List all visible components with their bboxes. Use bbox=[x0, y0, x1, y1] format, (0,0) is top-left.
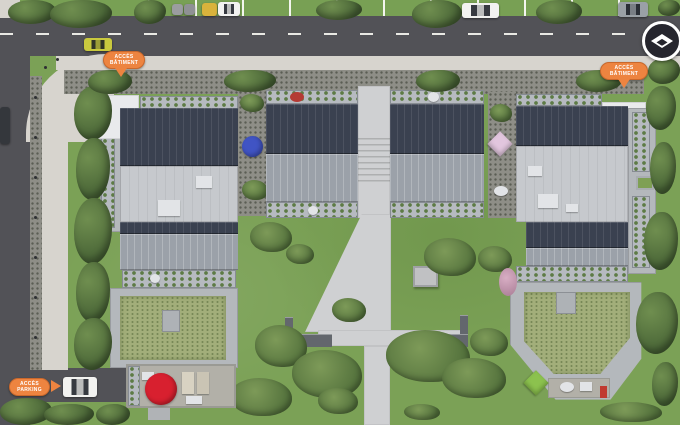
tree-right-edge bbox=[650, 142, 676, 194]
flower-bed-red bbox=[290, 92, 304, 102]
car-dark-parked-left bbox=[0, 107, 10, 144]
red-parasol-marker bbox=[145, 373, 177, 405]
bldg-b-west-slate-roof bbox=[390, 154, 484, 202]
terrace-step bbox=[148, 408, 170, 420]
patio-furniture bbox=[560, 382, 574, 392]
bldg-b-east-dark-roof bbox=[516, 106, 628, 146]
shrub bbox=[318, 388, 358, 414]
skylight bbox=[158, 200, 180, 216]
tree-right-edge bbox=[636, 292, 678, 354]
waste-bin bbox=[184, 4, 195, 15]
walkway-steps bbox=[358, 138, 390, 182]
patio-table bbox=[428, 92, 439, 102]
tree-right-edge bbox=[648, 58, 680, 84]
blue-parasol bbox=[242, 136, 263, 157]
access-batiment-marker-nw[interactable]: ACCÈS BÂTIMENT bbox=[103, 51, 145, 69]
bldg-a-east-north-planter bbox=[266, 90, 358, 104]
flower-bed-pink bbox=[499, 268, 517, 296]
patio-furniture bbox=[494, 186, 508, 196]
patio-furniture bbox=[580, 382, 592, 391]
patio-table bbox=[308, 206, 318, 215]
hedge-left bbox=[74, 198, 112, 264]
shrub bbox=[600, 402, 662, 422]
hedge-left bbox=[76, 262, 110, 322]
tree-right-edge bbox=[646, 86, 676, 130]
shrub bbox=[230, 378, 292, 416]
marker-label-line2: BÂTIMENT bbox=[610, 71, 638, 77]
bldg-a-east-slate-roof bbox=[266, 154, 358, 202]
shrub bbox=[442, 358, 506, 398]
left-sidewalk bbox=[40, 110, 68, 370]
shrub bbox=[286, 244, 314, 264]
siteplan-aerial-view: ACCÈS BÂTIMENT ACCÈS BÂTIMENT ACCÈS PARK… bbox=[0, 0, 680, 425]
shrub bbox=[332, 298, 366, 322]
shrub bbox=[250, 222, 292, 252]
tree-right-edge bbox=[652, 362, 678, 406]
access-batiment-marker-ne[interactable]: ACCÈS BÂTIMENT bbox=[600, 62, 648, 80]
shrub bbox=[242, 180, 268, 200]
bollard bbox=[56, 58, 59, 61]
tree-bottom-left bbox=[96, 404, 130, 425]
bldg-b-west-south-planter bbox=[390, 202, 484, 218]
hedge-left bbox=[74, 318, 112, 370]
marker-label-line2: PARKING bbox=[17, 387, 42, 393]
access-parking-marker-sw[interactable]: ACCÈS PARKING bbox=[9, 378, 50, 396]
bldg-b-west-dark-roof bbox=[390, 104, 484, 154]
skylight bbox=[196, 176, 212, 188]
terrace-planter bbox=[128, 366, 140, 406]
sun-lounger bbox=[182, 372, 194, 394]
bollard bbox=[34, 256, 37, 259]
bldg-a-west-terrace-planter bbox=[122, 270, 236, 288]
bldg-b-east-terrace-planter bbox=[516, 266, 628, 282]
bldg-b-east-dark-roof-2 bbox=[526, 222, 628, 248]
roof-stair-notch bbox=[162, 310, 180, 332]
tree-bottom-left bbox=[44, 404, 94, 425]
patio-furniture bbox=[186, 396, 202, 404]
bldg-a-west-dark-roof bbox=[120, 108, 238, 166]
bollard bbox=[44, 66, 47, 69]
bldg-a-west-dark-roof-2 bbox=[120, 222, 238, 234]
car-white-parked bbox=[462, 3, 499, 18]
car-white-bottom bbox=[63, 377, 97, 397]
shrub bbox=[490, 104, 512, 122]
sun-lounger bbox=[197, 372, 209, 394]
bldg-b-east-balcony-planters bbox=[632, 112, 650, 172]
top-sidewalk bbox=[56, 56, 680, 70]
bldg-b-east-north-planter bbox=[516, 94, 602, 106]
bollard bbox=[34, 176, 37, 179]
shrub bbox=[404, 404, 440, 420]
red-bench bbox=[600, 386, 607, 398]
skylight bbox=[528, 166, 542, 176]
marker-arrow-down-icon bbox=[618, 79, 630, 88]
car-yellow-driving bbox=[84, 38, 112, 51]
skylight bbox=[566, 204, 578, 212]
bollard bbox=[34, 136, 37, 139]
patio-table bbox=[150, 274, 160, 283]
skylight bbox=[538, 194, 558, 208]
marker-arrow-down-icon bbox=[115, 68, 127, 77]
bldg-a-garden-terrace bbox=[126, 364, 236, 408]
car-yellow-parked bbox=[202, 3, 217, 16]
roof-stair-notch bbox=[556, 292, 576, 314]
marker-arrow-right-icon bbox=[51, 380, 61, 392]
shrub bbox=[424, 238, 476, 276]
waste-bin bbox=[172, 4, 183, 15]
shrub bbox=[470, 328, 508, 356]
compass-north-icon bbox=[642, 21, 680, 61]
bollard bbox=[34, 296, 37, 299]
bldg-b-east-slate-roof bbox=[526, 248, 628, 266]
bollard bbox=[34, 96, 37, 99]
gravel-strip-left bbox=[30, 76, 42, 370]
car-white-parked bbox=[218, 2, 240, 16]
bldg-a-east-dark-roof bbox=[266, 104, 358, 154]
bollard bbox=[34, 216, 37, 219]
top-road-centerline bbox=[0, 33, 680, 35]
bollard bbox=[34, 336, 37, 339]
car-gray-parked bbox=[618, 2, 648, 17]
marker-label-line2: BÂTIMENT bbox=[110, 60, 138, 66]
bldg-a-west-slate-roof bbox=[120, 234, 238, 270]
tree-right-edge bbox=[644, 212, 678, 270]
shrub bbox=[240, 94, 264, 112]
